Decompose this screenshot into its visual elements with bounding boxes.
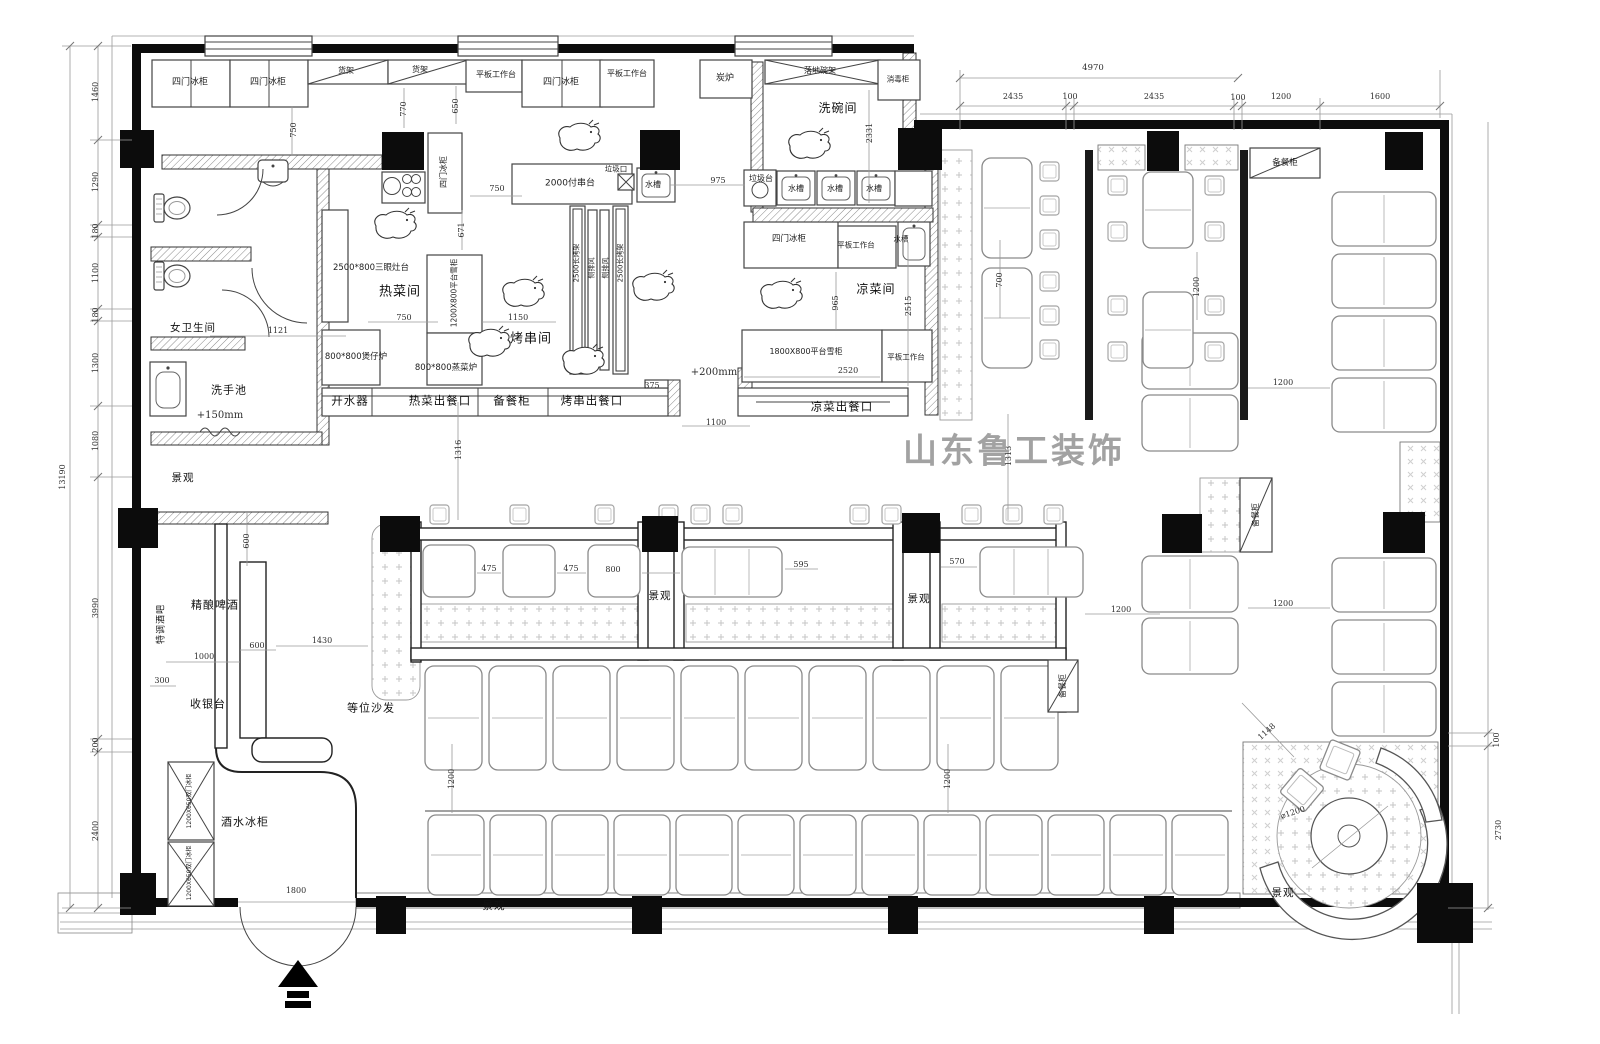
trash-chute bbox=[618, 174, 634, 190]
cow-figure-icon bbox=[563, 344, 604, 374]
floorplan-svg bbox=[0, 0, 1600, 1044]
sink bbox=[637, 168, 675, 202]
sideboard bbox=[1048, 660, 1078, 712]
cow-figure-icon bbox=[375, 208, 416, 238]
cow-figure-icon bbox=[789, 128, 830, 158]
toilet bbox=[154, 262, 190, 290]
sideboard bbox=[1250, 148, 1320, 178]
wine-fridge bbox=[168, 762, 214, 840]
floor-rack bbox=[765, 60, 880, 84]
dishroom bbox=[744, 170, 932, 206]
sideboard bbox=[1240, 478, 1272, 552]
cow-figure-icon bbox=[761, 278, 802, 308]
wine-fridge bbox=[168, 842, 214, 906]
stove-burners bbox=[382, 172, 425, 203]
cow-figure-icon bbox=[559, 120, 600, 150]
cow-figure-icon bbox=[633, 270, 674, 300]
windows bbox=[205, 36, 832, 56]
restroom bbox=[150, 160, 307, 436]
watermark: 山东鲁工装饰 bbox=[903, 424, 1125, 473]
interior-walls bbox=[151, 53, 938, 524]
toilet bbox=[154, 194, 190, 222]
kitchen-equipment bbox=[152, 60, 932, 416]
floor-plan: 四门冰柜四门冰柜货架货架平板工作台四门冰柜平板工作台炭炉落地碗架消毒柜洗碗间75… bbox=[0, 0, 1600, 1044]
serving-counter bbox=[322, 380, 908, 416]
wash-basin bbox=[150, 362, 186, 416]
bar-area bbox=[168, 524, 356, 906]
cow-figure-icon bbox=[503, 276, 544, 306]
